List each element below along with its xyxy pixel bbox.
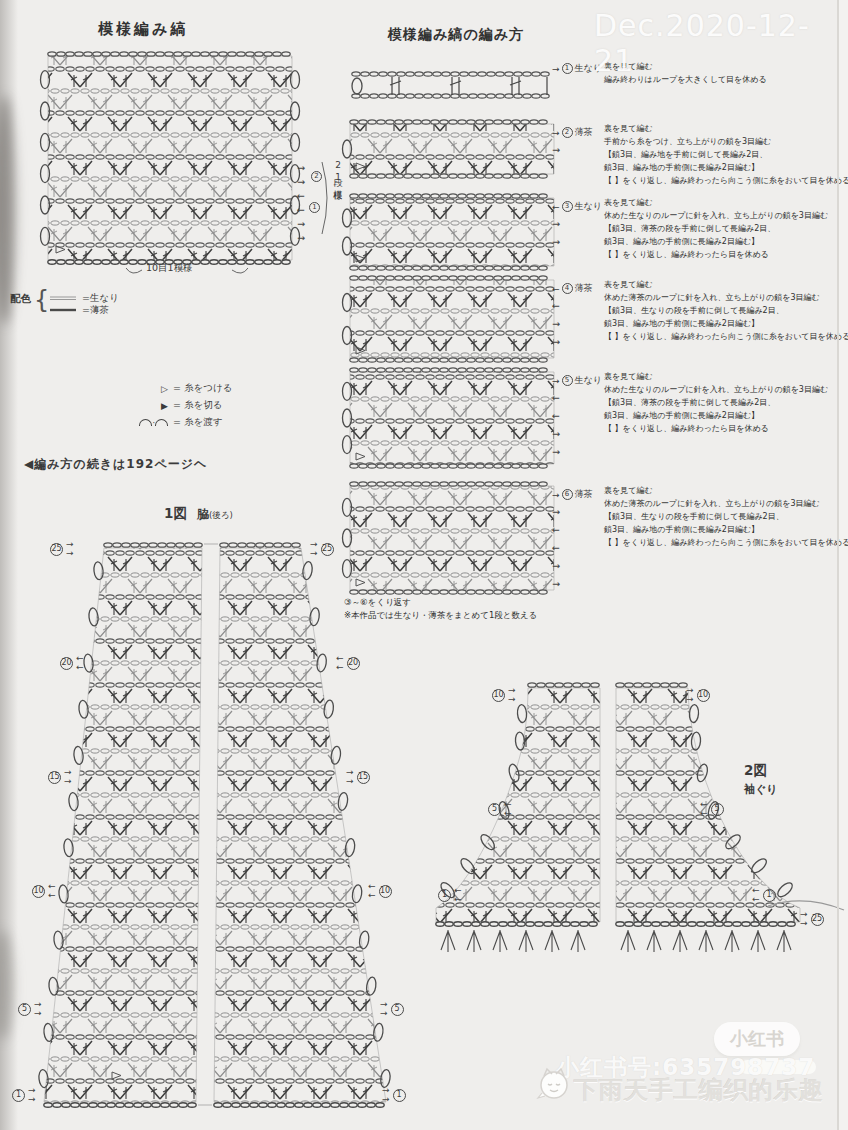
howto-footer: ③～⑥をくり返す ※本作品では生なり・薄茶をまとめて1段と数える [344,596,537,622]
step-side-arrows-5: ←←→→ [552,389,560,461]
fig1-row-marker-right-5: →→5 [380,1000,404,1018]
step-label-3: ←3生なり [552,200,602,213]
fig2-row-marker-right-5: ←←5 [700,800,724,818]
continue-note: ◀編み方の続きは192ページヘ [24,456,207,473]
howto-title: 模様編み縞の編み方 [388,26,524,44]
carry-yarn-icon: · [130,417,168,428]
fig2-row-marker-right-25: →→25 [800,910,824,928]
fig1-row-marker-right-20: ←←20 [336,654,360,672]
usucha-line-sample [50,307,78,313]
fig1-row-marker-left-20: 20←← [60,654,84,672]
legend-carry-yarn: · = 糸を渡す [130,414,232,431]
fig2-row-marker-right-1: ←←1 [752,886,776,904]
fig1-row-marker-left-15: 15→→ [48,768,72,786]
step-swatch-5 [350,372,554,464]
fig1-row-marker-left-10: 10←← [32,882,56,900]
fig2-row-marker-left-1: 1←← [438,886,462,904]
swatch-row-marker-2: 2 [311,163,322,182]
fig2-row-marker-left-5: 5←← [488,800,512,818]
step-side-arrows-2: → [552,141,560,159]
step-label-2: →2薄茶 [552,126,593,139]
page-right-edge-line [837,0,839,1130]
step-label-6: →6薄茶 [552,488,593,501]
legend-attach-yarn: ▷ = 糸をつける [130,380,232,397]
step-side-arrows-6: →←←→→ [552,503,560,593]
step-label-5: →5生なり [552,374,602,387]
fig1-row-marker-right-1: →→1 [382,1086,406,1104]
fig1-row-marker-left-5: 5→→ [18,1000,42,1018]
kinari-line-sample [50,295,78,301]
step-label-1: →1生なり [552,62,602,75]
scanned-pattern-page: 模様編み縞 模様編み縞の編み方 10目1模様 →→←←→→ 2 1 2段1模様 … [0,0,848,1130]
figure1-title: 1図 脇(後ろ) [164,505,233,523]
step-swatch-2 [350,124,554,174]
figure1-subtitle: 脇(後ろ) [197,506,233,523]
fig1-row-marker-right-25: →→25 [310,540,334,558]
figure1-left-half [44,548,202,1102]
step-label-4: ←4薄茶 [552,282,593,295]
step-swatch-3 [350,198,554,266]
swatch-repeat-label: 2段1模様 [331,160,344,244]
step-text-3: 表を見て編む休めた生なりのループに針を入れ、立ち上がりの鎖を3目編む【鎖3目、薄… [604,196,848,261]
cut-yarn-icon: ▶ [130,401,168,411]
step-text-4: 表を見て編む休めた薄茶のループに針を入れ、立ち上がりの鎖を3目編む【鎖3目、生な… [604,278,848,343]
palette-brace: { [34,286,49,314]
symbols-legend: ▷ = 糸をつける ▶ = 糸を切る · = 糸を渡す [130,380,232,431]
step-side-arrows-3: →→ [552,215,560,251]
figure2-title: 2図 袖ぐり [744,762,778,797]
legend-cut-yarn: ▶ = 糸を切る [130,397,232,414]
fig2-row-marker-right-10: →→10 [686,686,710,704]
figure1-right-half [214,548,386,1102]
step-text-1: 裏を見て編む編み終わりはループを大きくして目を休める [604,60,848,86]
palette-item-usucha: =薄茶 [50,304,119,316]
swatch-bottom-label: 10目1模様 [146,262,193,275]
step-swatch-6 [350,486,554,590]
swatch-title: 模様編み縞 [98,20,188,39]
step-text-2: 裏を見て編む手前から糸をつけ、立ち上がりの鎖を3目編む【鎖3目、編み地を手前に倒… [604,122,848,187]
fig1-row-marker-right-10: ←←10 [368,882,392,900]
fig1-row-marker-left-25: 25→→ [50,540,74,558]
fig2-row-marker-left-10: 10→→ [492,686,516,704]
swatch-side-arrows: →→←←→→ [297,161,305,245]
palette-item-kinari: =生なり [50,292,119,304]
attach-yarn-icon: ▷ [130,384,168,394]
palette-items: =生なり =薄茶 [50,292,119,316]
step-text-5: 裏を見て編む休めた生なりのループに針を入れ、立ち上がりの鎖を3目編む【鎖3目、薄… [604,370,848,435]
step-text-6: 裏を見て編む休めた薄茶のループに針を入れ、立ち上がりの鎖を3目編む【鎖3目、生な… [604,484,848,549]
swatch-row-marker-1: 1 [309,194,320,213]
step-side-arrows-4: ←→→ [552,297,560,351]
swatch-chart [48,56,292,260]
fig1-row-marker-right-15: →→15 [346,768,370,786]
step-swatch-4 [350,280,554,358]
